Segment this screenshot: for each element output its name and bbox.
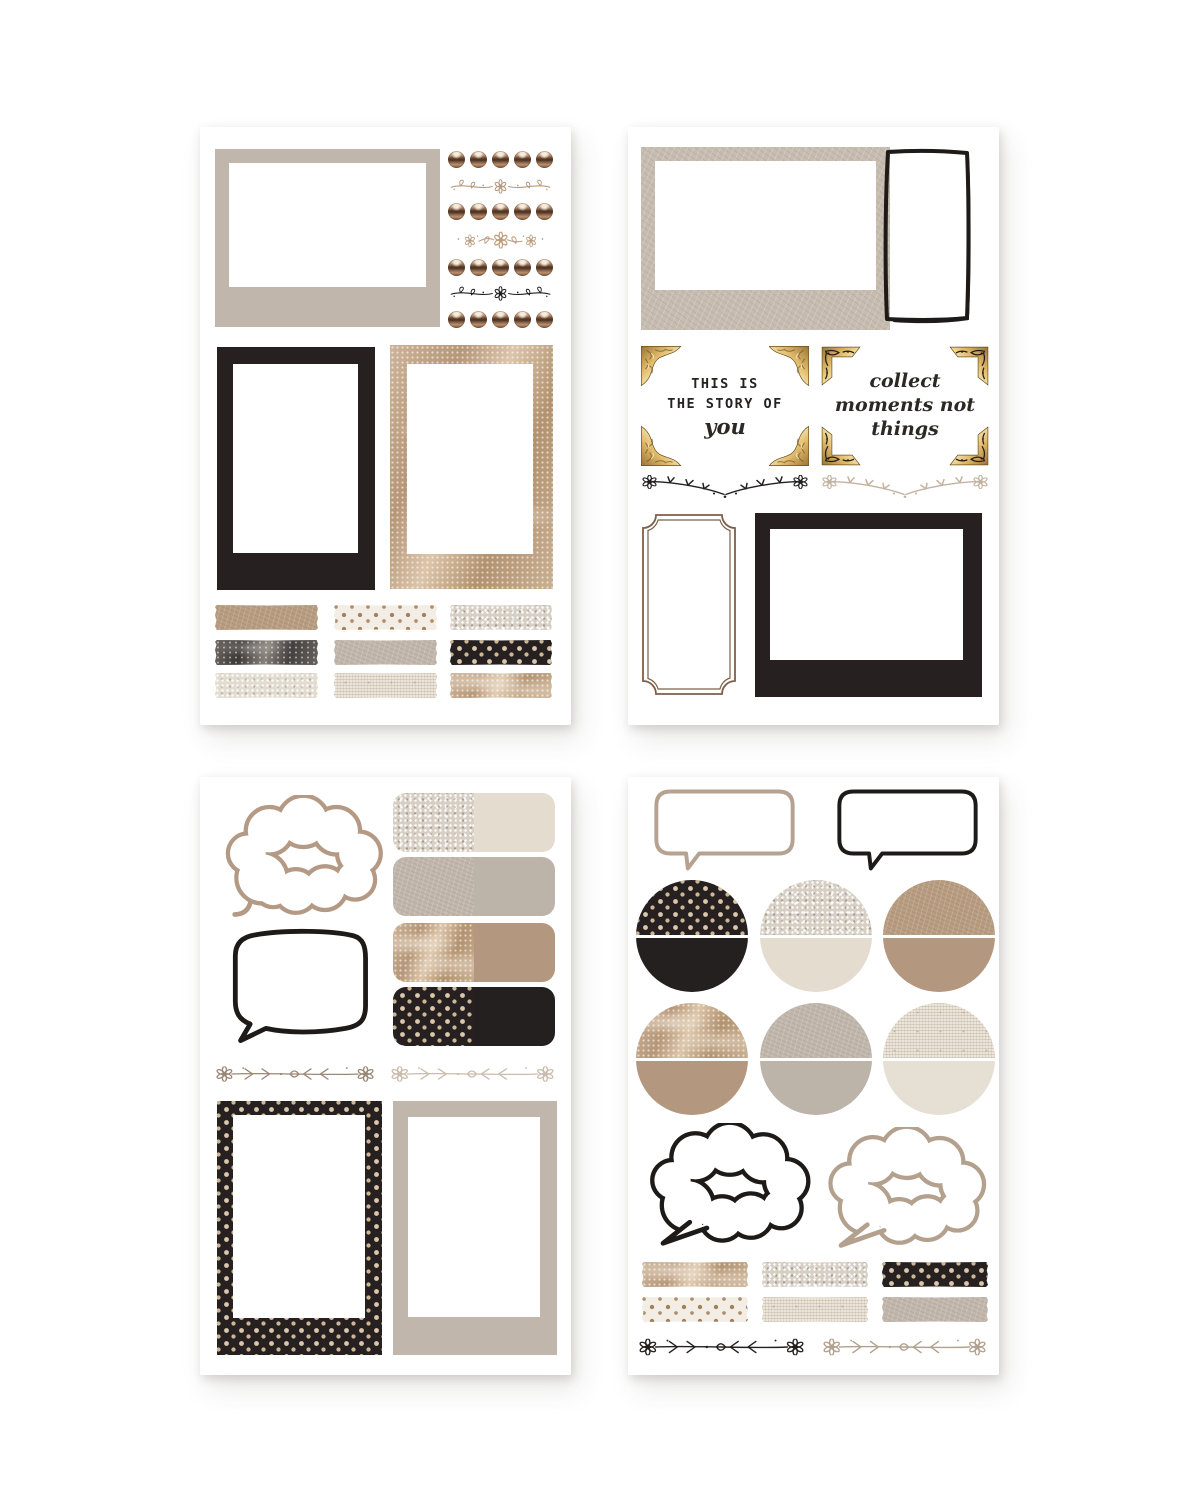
flourish-daisy-vine-icon: [448, 178, 553, 195]
washi-tape-tan-marble: [642, 1262, 748, 1287]
cloud-speech-bubble-black: [640, 1123, 812, 1249]
speech-bubble-black: [220, 927, 380, 1045]
bronze-brad-icon: [470, 151, 487, 168]
gold-carved-corner-icon: [768, 425, 810, 467]
bronze-brad-icon: [470, 259, 487, 276]
flourish-vee-icon: [640, 475, 810, 499]
bronze-brad-icon: [514, 259, 531, 276]
gold-scroll-corner-icon: [820, 345, 862, 387]
washi-tape-dark-marble: [215, 640, 318, 665]
tab-half-black: [474, 987, 555, 1046]
texture-tab-leather-taupe: [393, 857, 555, 916]
quote-this-is-the-story-of-you: THIS IS THE STORY OF you: [640, 345, 810, 467]
sticker-sheets-canvas: THIS IS THE STORY OF you collect moments…: [0, 0, 1200, 1500]
washi-tape-cream-dots: [642, 1297, 748, 1322]
circle-half-tan: [636, 1061, 748, 1116]
brad-dot-row: [448, 203, 553, 220]
photo-window: [229, 163, 426, 287]
flourish-vee-icon: [820, 475, 990, 499]
polaroid-frame-beige-landscape: [215, 149, 440, 327]
gold-carved-corner-icon: [768, 345, 810, 387]
half-circle-marble-tan: [636, 1003, 748, 1115]
circle-half-tan: [883, 938, 995, 993]
circle-half-linen: [883, 1003, 995, 1061]
photo-window: [407, 364, 533, 554]
flourish-daisy-vine-icon: [448, 285, 553, 302]
half-circle-linen-cream: [883, 1003, 995, 1115]
circle-half-cream: [883, 1061, 995, 1116]
washi-tape-silver-glitter: [762, 1262, 868, 1287]
washi-tape-taupe-leather: [334, 640, 437, 665]
bronze-brad-icon: [514, 203, 531, 220]
photo-frame-beige-portrait: [393, 1101, 557, 1355]
photo-window: [770, 529, 963, 660]
bronze-brad-icon: [492, 259, 509, 276]
washi-tape-black-dots: [450, 640, 552, 665]
washi-tape-tan-marble: [450, 673, 552, 698]
tab-half-glitter: [393, 793, 474, 852]
bronze-brad-icon: [448, 203, 465, 220]
tab-half-tan: [474, 923, 555, 982]
polaroid-frame-black-portrait: [217, 347, 375, 590]
bronze-brad-icon: [448, 151, 465, 168]
circle-half-taupe: [760, 1061, 872, 1116]
photo-window: [408, 1117, 540, 1317]
quote-line-script: you: [704, 415, 745, 438]
bronze-brad-icon: [448, 259, 465, 276]
texture-tab-dots-black: [393, 987, 555, 1046]
tab-half-marble: [393, 923, 474, 982]
quote-line-script: things: [871, 418, 939, 442]
photo-window: [233, 1115, 365, 1318]
washi-tape-taupe-leather: [882, 1297, 988, 1322]
bronze-brad-icon: [536, 151, 553, 168]
circle-half-leather: [883, 880, 995, 938]
flourish-leaf-line-icon: [822, 1335, 987, 1359]
brad-dot-row: [448, 151, 553, 168]
gold-scroll-corner-icon: [820, 425, 862, 467]
texture-tab-marble-tan: [393, 923, 555, 982]
bronze-brad-icon: [492, 311, 509, 328]
bronze-brad-icon: [470, 203, 487, 220]
flourish-daisy-trio-icon: [448, 231, 553, 250]
texture-tab-glitter-cream: [393, 793, 555, 852]
washi-tape-cream-dots: [334, 605, 437, 630]
flourish-leaf-line-icon: [215, 1063, 375, 1085]
rect-speech-bubble-black: [825, 788, 990, 871]
quote-line: THIS IS: [691, 374, 758, 394]
washi-tape-black-dots: [882, 1262, 988, 1287]
washi-tape-tan-leather: [215, 605, 318, 630]
photo-window: [233, 364, 358, 553]
cloud-speech-bubble-beige: [213, 795, 390, 922]
washi-tape-cream-linen: [334, 673, 437, 698]
washi-tape-silver-glitter: [450, 605, 552, 630]
tab-half-leather: [393, 857, 474, 916]
quote-line-script: collect: [869, 370, 940, 394]
sticker-sheet-circles-bubbles: [628, 777, 999, 1375]
gold-carved-corner-icon: [640, 425, 682, 467]
circle-half-glitter: [760, 880, 872, 938]
flourish-leaf-line-icon: [638, 1335, 805, 1359]
sticker-sheet-bubbles-tabs: [200, 777, 571, 1375]
circle-half-leather: [760, 1003, 872, 1061]
bronze-brad-icon: [536, 311, 553, 328]
tab-half-dots: [393, 987, 474, 1046]
bronze-brad-icon: [448, 311, 465, 328]
bronze-brad-icon: [514, 151, 531, 168]
flourish-leaf-line-icon: [390, 1063, 555, 1085]
bronze-brad-icon: [536, 203, 553, 220]
half-circle-glitter-cream: [760, 880, 872, 992]
gold-scroll-corner-icon: [948, 425, 990, 467]
gold-scroll-corner-icon: [948, 345, 990, 387]
glitter-frame-tan-portrait: [390, 345, 553, 589]
circle-half-dots: [636, 880, 748, 938]
bronze-brad-icon: [492, 203, 509, 220]
half-circle-leather-tan: [883, 880, 995, 992]
sticker-sheet-frames-brads: [200, 127, 571, 725]
half-circle-leather-taupe: [760, 1003, 872, 1115]
brad-dot-row: [448, 259, 553, 276]
polaroid-frame-black-dots-portrait: [217, 1101, 382, 1355]
washi-tape-cream-linen: [762, 1297, 868, 1322]
tab-half-taupe: [474, 857, 555, 916]
photo-window: [655, 161, 876, 290]
circle-half-cream: [760, 938, 872, 993]
quote-line: THE STORY OF: [667, 394, 783, 414]
circle-half-black: [636, 938, 748, 993]
polaroid-frame-leather-landscape: [641, 147, 890, 330]
hand-drawn-frame: [880, 147, 973, 324]
bronze-brad-icon: [514, 311, 531, 328]
half-circle-dots-black: [636, 880, 748, 992]
gold-carved-corner-icon: [640, 345, 682, 387]
tab-half-cream: [474, 793, 555, 852]
washi-tape-light-glitter: [215, 673, 318, 698]
rect-speech-bubble-beige: [642, 788, 807, 871]
quote-collect-moments-not-things: collect moments not things: [820, 345, 990, 467]
ticket-frame: [640, 512, 738, 697]
bronze-brad-icon: [536, 259, 553, 276]
sticker-sheet-quotes-frames: THIS IS THE STORY OF you collect moments…: [628, 127, 999, 725]
polaroid-frame-black-landscape: [755, 513, 982, 697]
brad-dot-row: [448, 311, 553, 328]
cloud-speech-bubble-beige: [818, 1127, 988, 1251]
quote-line-script: moments not: [835, 394, 975, 418]
bronze-brad-icon: [470, 311, 487, 328]
bronze-brad-icon: [492, 151, 509, 168]
circle-half-marble: [636, 1003, 748, 1061]
